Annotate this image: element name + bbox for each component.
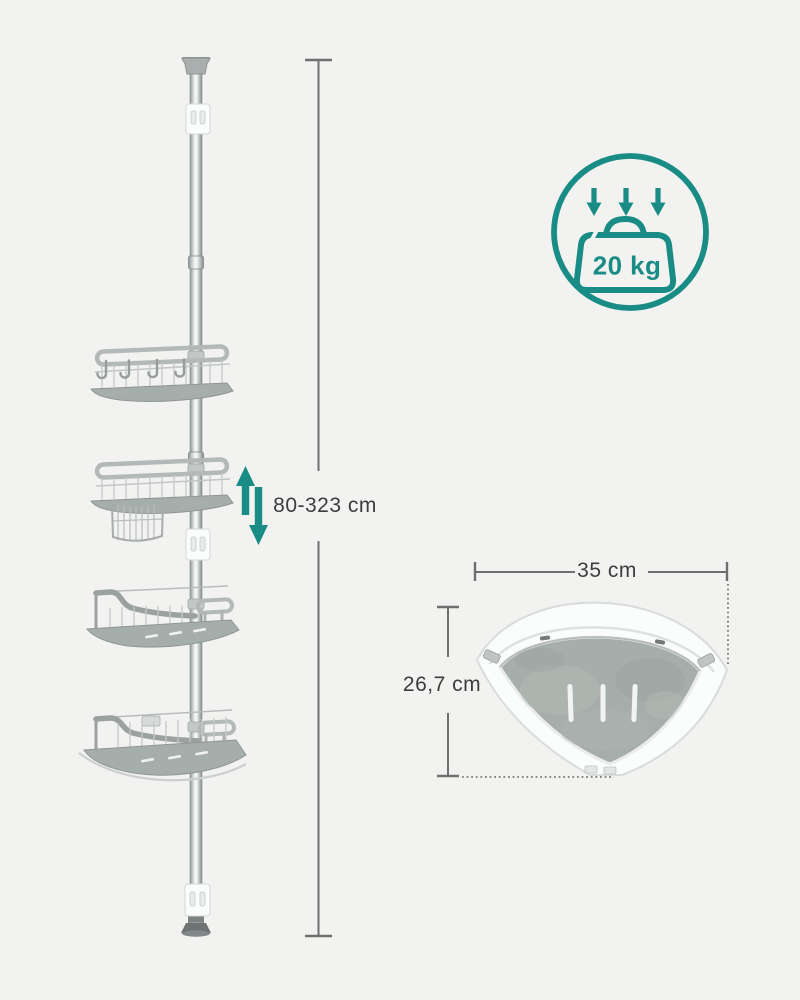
height-adjust-arrows-icon xyxy=(236,466,268,545)
shelf-base xyxy=(91,383,233,401)
telescopic-joint-upper xyxy=(189,256,204,269)
wall-bracket-bottom xyxy=(185,884,210,916)
shelf-rim xyxy=(200,721,235,735)
max-load-label: 20 kg xyxy=(593,251,662,282)
caddy-side-view xyxy=(79,57,246,937)
shelf-2 xyxy=(91,459,233,541)
arrow-down xyxy=(249,487,268,545)
shelf-4 xyxy=(79,710,246,780)
shelf-1 xyxy=(91,346,233,401)
shelf-rim xyxy=(97,346,227,365)
shelf-width-label: 35 cm xyxy=(577,559,637,583)
ceiling-mount xyxy=(182,57,210,74)
height-range-label: 80-323 cm xyxy=(273,494,377,518)
scene-drawing xyxy=(0,0,800,1000)
razor-holder-clip xyxy=(142,716,160,726)
shelf-depth-label: 26,7 cm xyxy=(403,673,481,697)
shelf-rim xyxy=(97,459,227,478)
wall-bracket-top xyxy=(186,104,210,134)
shelf-top-view xyxy=(437,562,728,777)
weight-capacity-badge xyxy=(554,156,706,308)
shelf-3 xyxy=(87,586,239,647)
three-down-arrows-icon xyxy=(587,188,666,216)
product-diagram-canvas: 80-323 cm 20 kg 35 cm 26,7 cm xyxy=(0,0,800,1000)
wall-bracket-middle xyxy=(186,529,210,560)
arrow-up xyxy=(236,466,255,515)
pole-tube xyxy=(190,64,202,917)
floor-foot xyxy=(181,916,211,937)
